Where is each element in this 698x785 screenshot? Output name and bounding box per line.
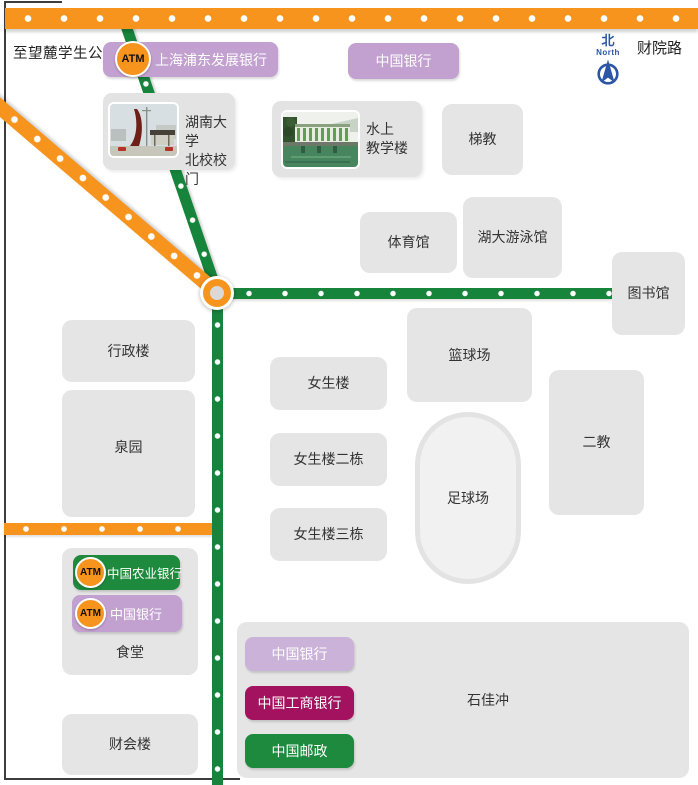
- bank-post-text: 中国邮政: [272, 741, 328, 761]
- bank-boc-canteen-text: 中国银行: [110, 604, 162, 623]
- building-erjiao: 二教: [549, 370, 644, 515]
- building-admin: 行政楼: [62, 320, 195, 382]
- bank-label-boc-top: 中国银行: [348, 43, 459, 79]
- street-label-caiyuan: 财院路: [637, 37, 682, 58]
- road-green-horizontal: [217, 288, 612, 299]
- bank-label-boc-shijiachong: 中国银行: [245, 637, 354, 671]
- building-pool: 湖大游泳馆: [463, 197, 562, 278]
- bank-abc-text: 中国农业银行: [107, 563, 182, 582]
- road-junction-core: [210, 286, 224, 300]
- building-quanyuan-label: 泉园: [115, 438, 143, 457]
- building-basketball: 篮球场: [407, 308, 532, 402]
- bank-spdb-text: 上海浦东发展银行: [155, 50, 267, 70]
- bank-boc-shijiachong-text: 中国银行: [272, 644, 328, 664]
- bank-icbc-text: 中国工商银行: [258, 693, 342, 713]
- bank-label-spdb: ATM 上海浦东发展银行: [103, 42, 278, 77]
- compass-north-en: North: [591, 48, 625, 57]
- road-orange-lower: [4, 523, 216, 535]
- road-green-vertical: [212, 293, 223, 785]
- building-canteen-label: 食堂: [62, 643, 198, 662]
- building-gym: 体育馆: [360, 212, 457, 273]
- water-teaching-photo: [283, 112, 358, 167]
- building-quanyuan: 泉园: [62, 390, 195, 517]
- bank-label-post: 中国邮政: [245, 734, 354, 768]
- map-border-bottom: [4, 778, 240, 780]
- building-gate-label: 湖南大学 北校校门: [185, 113, 235, 189]
- building-girls3: 女生楼三栋: [270, 508, 387, 561]
- building-gate: 湖南大学 北校校门: [103, 93, 235, 170]
- building-library: 图书馆: [612, 252, 685, 335]
- building-football-field: 足球场: [415, 412, 521, 584]
- road-junction: [200, 276, 234, 310]
- atm-badge: ATM: [75, 598, 106, 629]
- road-orange-top: [5, 8, 698, 29]
- building-caikuai: 财会楼: [62, 714, 198, 775]
- compass-north-icon: [595, 59, 621, 85]
- campus-map: 至望麓学生公寓 财院路 北 North: [0, 0, 698, 785]
- gate-photo: [110, 104, 177, 156]
- bank-label-abc: ATM 中国农业银行: [73, 555, 180, 590]
- building-water-teaching-label: 水上 教学楼: [366, 120, 408, 158]
- building-shijiachong-label: 石佳冲: [467, 691, 509, 710]
- bank-boc-top-text: 中国银行: [376, 51, 432, 71]
- map-border-top: [4, 1, 62, 3]
- atm-badge: ATM: [75, 557, 106, 588]
- bank-label-icbc: 中国工商银行: [245, 686, 354, 720]
- building-girls1: 女生楼: [270, 357, 387, 410]
- atm-badge: ATM: [115, 41, 151, 77]
- building-girls2: 女生楼二栋: [270, 433, 387, 486]
- compass: 北 North: [591, 34, 625, 85]
- compass-north-zh: 北: [591, 34, 625, 48]
- bank-label-boc-canteen: ATM 中国银行: [72, 595, 182, 632]
- building-water-teaching: 水上 教学楼: [272, 101, 422, 177]
- building-tijiao: 梯教: [442, 104, 523, 175]
